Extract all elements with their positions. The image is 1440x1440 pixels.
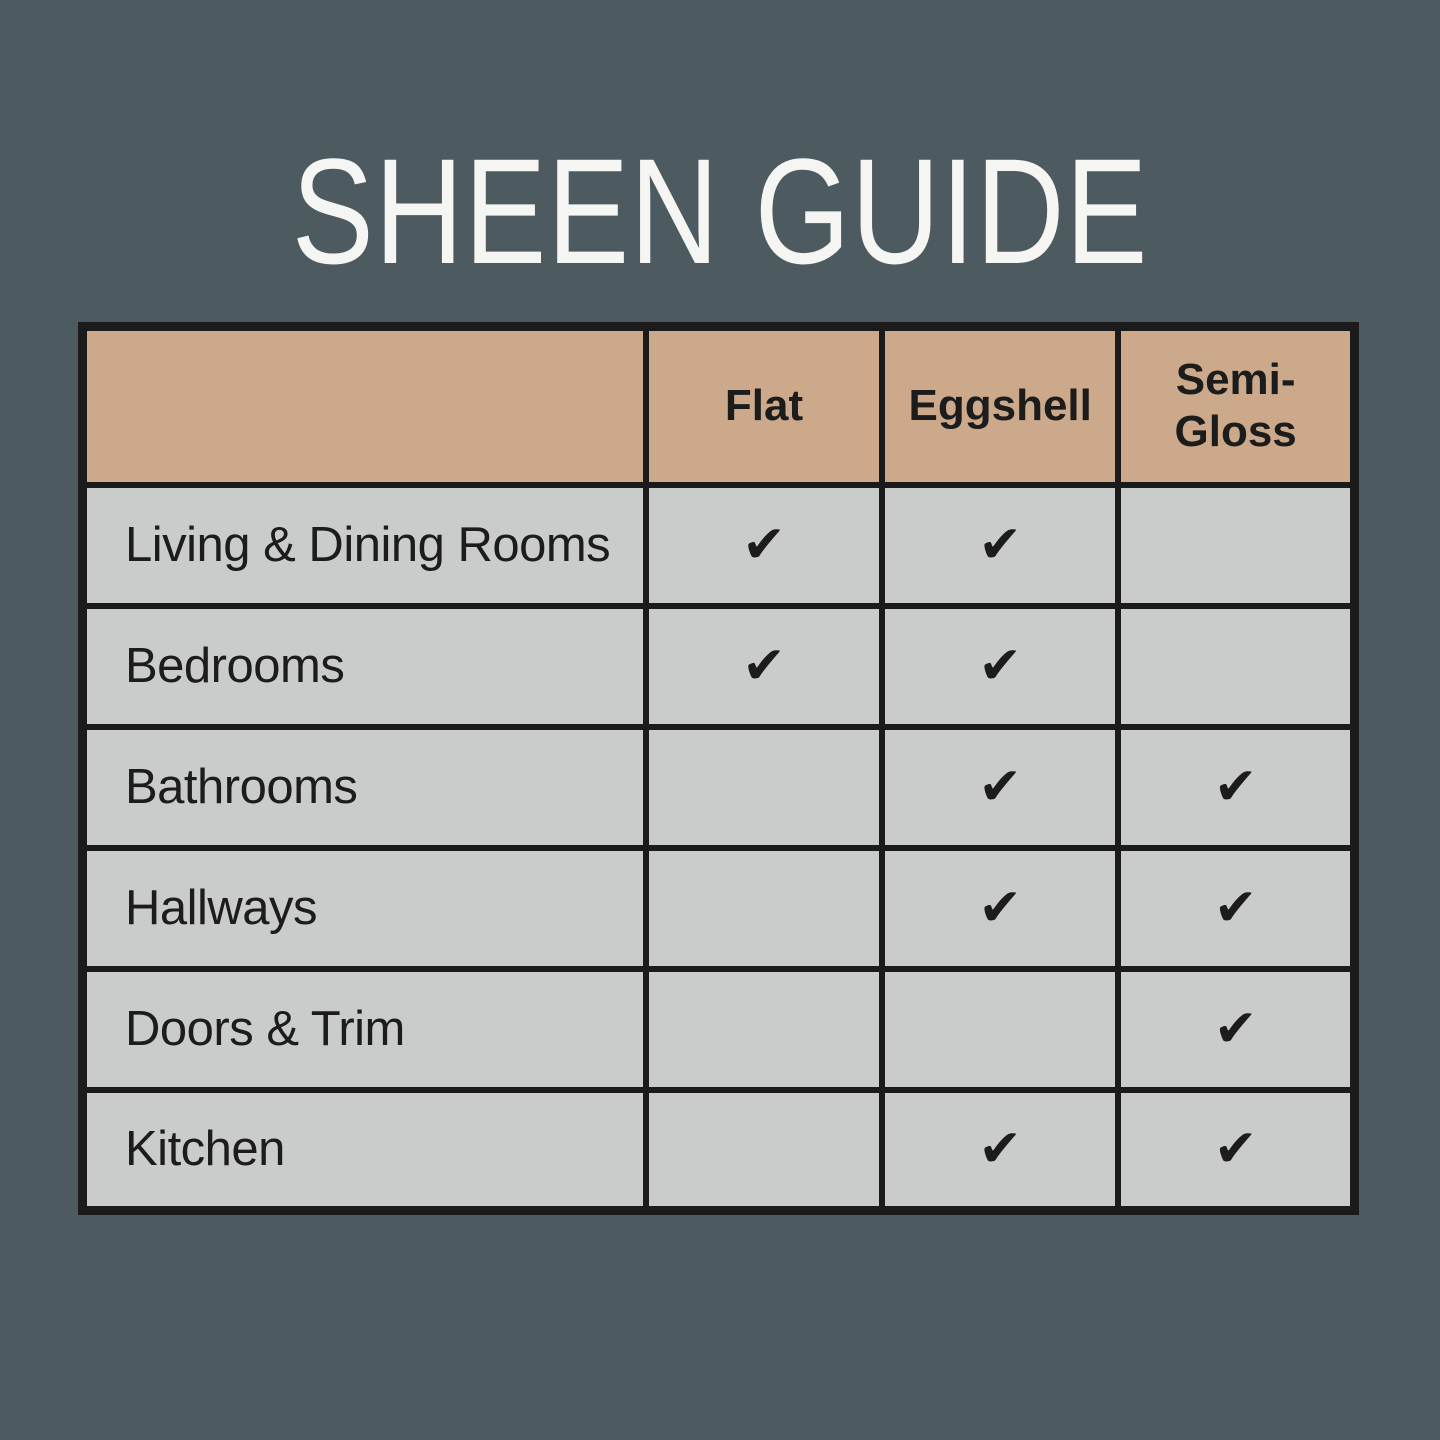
sheen-table: Flat Eggshell Semi-Gloss Living & Dining… [78,322,1359,1215]
check-cell-semi-gloss [1118,606,1354,727]
header-cell-eggshell: Eggshell [882,327,1118,485]
check-cell-flat [646,1090,882,1211]
row-label: Hallways [83,848,646,969]
check-cell-eggshell [882,969,1118,1090]
check-cell-flat [646,727,882,848]
check-cell-semi-gloss: ✔ [1118,969,1354,1090]
check-cell-semi-gloss: ✔ [1118,848,1354,969]
page-title: SHEEN GUIDE [130,136,1311,286]
check-cell-semi-gloss: ✔ [1118,1090,1354,1211]
header-cell-semi-gloss: Semi-Gloss [1118,327,1354,485]
row-label: Living & Dining Rooms [83,485,646,606]
header-cell-rooms [83,327,646,485]
row-label: Bathrooms [83,727,646,848]
check-cell-flat [646,848,882,969]
check-cell-eggshell: ✔ [882,848,1118,969]
header-cell-flat: Flat [646,327,882,485]
check-cell-semi-gloss: ✔ [1118,727,1354,848]
table-row-doors-trim: Doors & Trim ✔ [83,969,1355,1090]
table-row-bathrooms: Bathrooms ✔ ✔ [83,727,1355,848]
check-cell-flat [646,969,882,1090]
row-label: Doors & Trim [83,969,646,1090]
table-header-row: Flat Eggshell Semi-Gloss [83,327,1355,485]
check-cell-eggshell: ✔ [882,727,1118,848]
check-cell-eggshell: ✔ [882,485,1118,606]
table-row-kitchen: Kitchen ✔ ✔ [83,1090,1355,1211]
table-row-bedrooms: Bedrooms ✔ ✔ [83,606,1355,727]
check-cell-flat: ✔ [646,606,882,727]
table-row-living-dining: Living & Dining Rooms ✔ ✔ [83,485,1355,606]
check-cell-eggshell: ✔ [882,1090,1118,1211]
check-cell-flat: ✔ [646,485,882,606]
sheen-guide-infographic: SHEEN GUIDE Flat Eggshell Semi-Gloss Liv… [0,0,1440,1440]
check-cell-semi-gloss [1118,485,1354,606]
row-label: Bedrooms [83,606,646,727]
check-cell-eggshell: ✔ [882,606,1118,727]
table-row-hallways: Hallways ✔ ✔ [83,848,1355,969]
row-label: Kitchen [83,1090,646,1211]
